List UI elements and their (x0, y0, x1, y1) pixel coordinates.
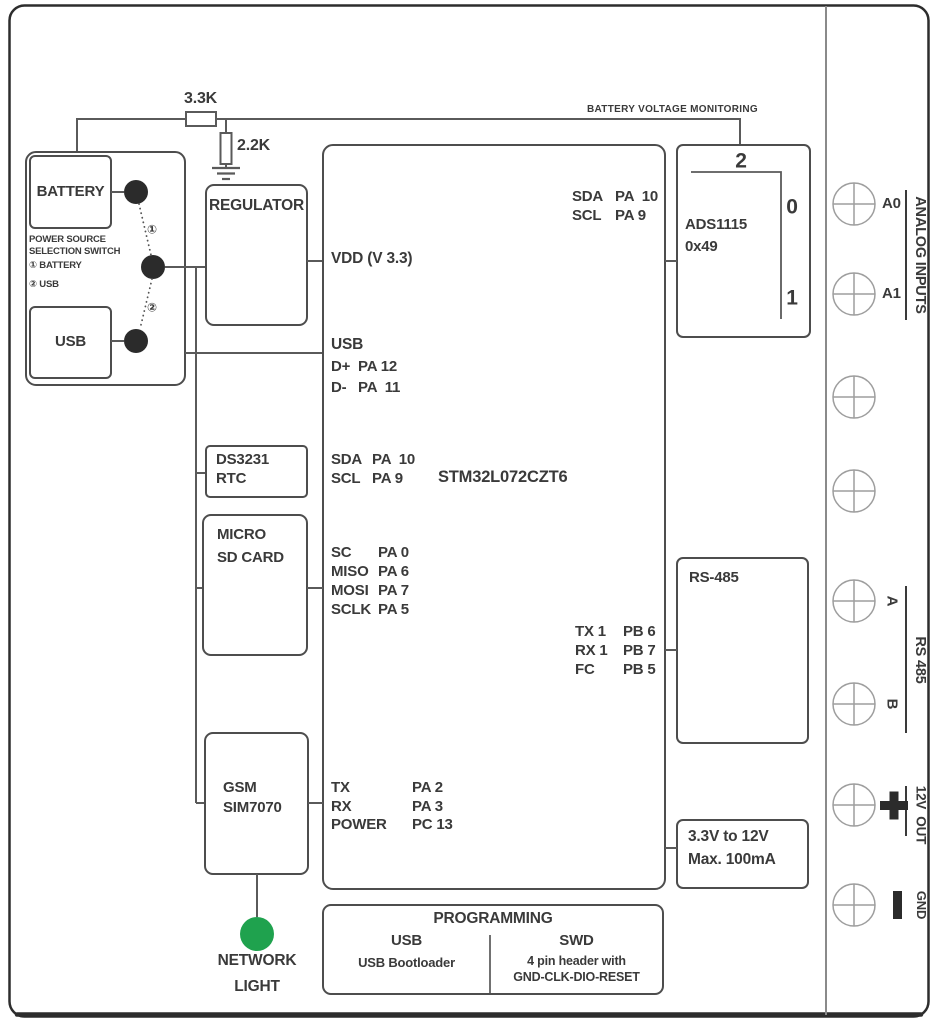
mcu-spi-pin-row: SCPA 0 (331, 545, 409, 562)
ads-channel-0: 0 (786, 195, 797, 218)
sdcard-label-line2: SD CARD (217, 550, 284, 567)
pin-port: PA 7 (378, 583, 409, 600)
pin-port: PA 3 (412, 799, 443, 816)
pin-name: TX 1 (575, 624, 623, 641)
screw-terminal-spare-2 (833, 470, 875, 512)
network-light-label-line1: NETWORK (218, 952, 297, 969)
mcu-usb-pin-row: D+PA 12 (331, 359, 397, 376)
pin-name: POWER (331, 817, 412, 834)
terminal-group-rs485: RS 485 (911, 636, 927, 683)
pin-port: PA 10 (372, 452, 415, 469)
programming-swd-desc1: 4 pin header with (490, 955, 663, 969)
switch-option-1: ① BATTERY (29, 261, 82, 271)
ads-label-line2: 0x49 (685, 239, 718, 256)
terminal-label-a1: A1 (882, 286, 901, 303)
terminal-label-a0: A0 (882, 196, 901, 213)
pin-port: PC 13 (412, 817, 453, 834)
screw-terminal-rs485-b (833, 683, 875, 725)
ground-icon (212, 168, 240, 179)
network-light-label-line2: LIGHT (234, 978, 280, 995)
mcu-usb-pin-row: D-PA 11 (331, 380, 400, 397)
pin-name: MISO (331, 564, 378, 581)
pin-port: PA 9 (615, 208, 646, 225)
mcu-spi-pin-row: SCLKPA 5 (331, 602, 409, 619)
resistor-3k3 (186, 112, 216, 126)
mcu-rs485-pin-row: RX 1PB 7 (575, 643, 656, 660)
screw-terminal-12v (833, 784, 875, 826)
switch-marker-2: ② (147, 301, 157, 314)
mcu-i2c-pin-row: SDAPA 10 (331, 452, 415, 469)
network-light (240, 917, 274, 951)
mcu-gsm-pin-row: RXPA 3 (331, 799, 443, 816)
pin-name: SCLK (331, 602, 378, 619)
mcu-gsm-pin-row: POWERPC 13 (331, 817, 453, 834)
ads-channel-1: 1 (786, 286, 797, 309)
minus-symbol (893, 891, 902, 919)
pin-port: PA 2 (412, 780, 443, 797)
usb-contact-dot (124, 329, 148, 353)
pin-name: D+ (331, 359, 358, 376)
mcu-spi-pin-row: MOSIPA 7 (331, 583, 409, 600)
battery-connector-label: BATTERY (30, 156, 111, 228)
pin-port: PB 7 (623, 643, 656, 660)
switch-option-2: ② USB (29, 280, 59, 290)
schematic-lines (0, 0, 935, 1024)
resistor-2k2-label: 2.2K (237, 137, 270, 155)
switch-marker-1: ① (147, 223, 157, 236)
switch-caption-line2: SELECTION SWITCH (29, 247, 120, 257)
terminal-label-b: B (883, 699, 900, 710)
mcu-rs485-pin-row: TX 1PB 6 (575, 624, 656, 641)
block-diagram: 3.3K 2.2K BATTERY VOLTAGE MONITORING BAT… (0, 0, 935, 1024)
screw-terminal-rs485-a (833, 580, 875, 622)
pin-name: MOSI (331, 583, 378, 600)
screw-terminal-a0 (833, 183, 875, 225)
pin-name: RX (331, 799, 412, 816)
pin-port: PB 6 (623, 624, 656, 641)
rtc-label-line2: RTC (216, 471, 246, 488)
programming-usb-desc: USB Bootloader (323, 956, 490, 970)
usb-connector-label: USB (30, 307, 111, 378)
mcu-part-number: STM32L072CZT6 (438, 468, 567, 486)
pin-name: SDA (572, 189, 615, 206)
pin-port: PA 0 (378, 545, 409, 562)
terminal-label-gnd: GND (914, 891, 928, 919)
switch-caption-line1: POWER SOURCE (29, 235, 106, 245)
screw-terminals (833, 183, 875, 926)
pin-name: SDA (331, 452, 372, 469)
resistor-2k2 (221, 133, 232, 164)
pin-name: D- (331, 380, 358, 397)
common-contact-dot (141, 255, 165, 279)
plus-symbol (880, 792, 908, 820)
pin-port: PA 9 (372, 471, 403, 488)
screw-terminal-a1 (833, 273, 875, 315)
mcu-ads-i2c-pin-row: SCLPA 9 (572, 208, 646, 225)
pin-name: FC (575, 662, 623, 679)
programming-usb-title: USB (323, 933, 490, 950)
rtc-label-line1: DS3231 (216, 452, 269, 469)
mcu-vdd-label: VDD (V 3.3) (331, 250, 412, 267)
pin-port: PA 5 (378, 602, 409, 619)
mcu-ads-i2c-pin-row: SDAPA 10 (572, 189, 658, 206)
terminal-group-12v-out: 12V OUT (913, 786, 928, 844)
resistor-3k3-label: 3.3K (184, 90, 217, 108)
programming-title: PROGRAMMING (323, 910, 663, 927)
terminal-label-a: A (883, 596, 900, 607)
pin-port: PA 11 (358, 380, 400, 397)
pin-name: SCL (331, 471, 372, 488)
pin-name: SCL (572, 208, 615, 225)
mcu-usb-title: USB (331, 336, 363, 353)
screw-terminal-gnd (833, 884, 875, 926)
boost-label-line2: Max. 100mA (688, 851, 776, 868)
pin-port: PA 10 (615, 189, 658, 206)
mcu-rs485-pin-row: FCPB 5 (575, 662, 656, 679)
battery-contact-dot (124, 180, 148, 204)
terminal-group-analog-inputs: ANALOG INPUTS (911, 196, 927, 313)
pin-port: PA 12 (358, 359, 397, 376)
mcu-gsm-pin-row: TXPA 2 (331, 780, 443, 797)
mcu-i2c-pin-row: SCLPA 9 (331, 471, 403, 488)
boost-label-line1: 3.3V to 12V (688, 828, 769, 845)
regulator-label: REGULATOR (206, 197, 307, 214)
pin-port: PB 5 (623, 662, 656, 679)
gsm-label-line2: SIM7070 (223, 800, 282, 817)
gsm-label-line1: GSM (223, 780, 257, 797)
battery-monitor-label: BATTERY VOLTAGE MONITORING (587, 104, 758, 115)
screw-terminal-spare-1 (833, 376, 875, 418)
ads-label-line1: ADS1115 (685, 217, 747, 234)
pin-name: RX 1 (575, 643, 623, 660)
pin-name: TX (331, 780, 412, 797)
sdcard-label-line1: MICRO (217, 527, 266, 544)
programming-swd-title: SWD (490, 933, 663, 950)
programming-swd-desc2: GND-CLK-DIO-RESET (490, 971, 663, 985)
rs485-label: RS-485 (689, 570, 739, 587)
pin-name: SC (331, 545, 378, 562)
mcu-spi-pin-row: MISOPA 6 (331, 564, 409, 581)
ads-channel-2: 2 (735, 149, 746, 172)
pin-port: PA 6 (378, 564, 409, 581)
